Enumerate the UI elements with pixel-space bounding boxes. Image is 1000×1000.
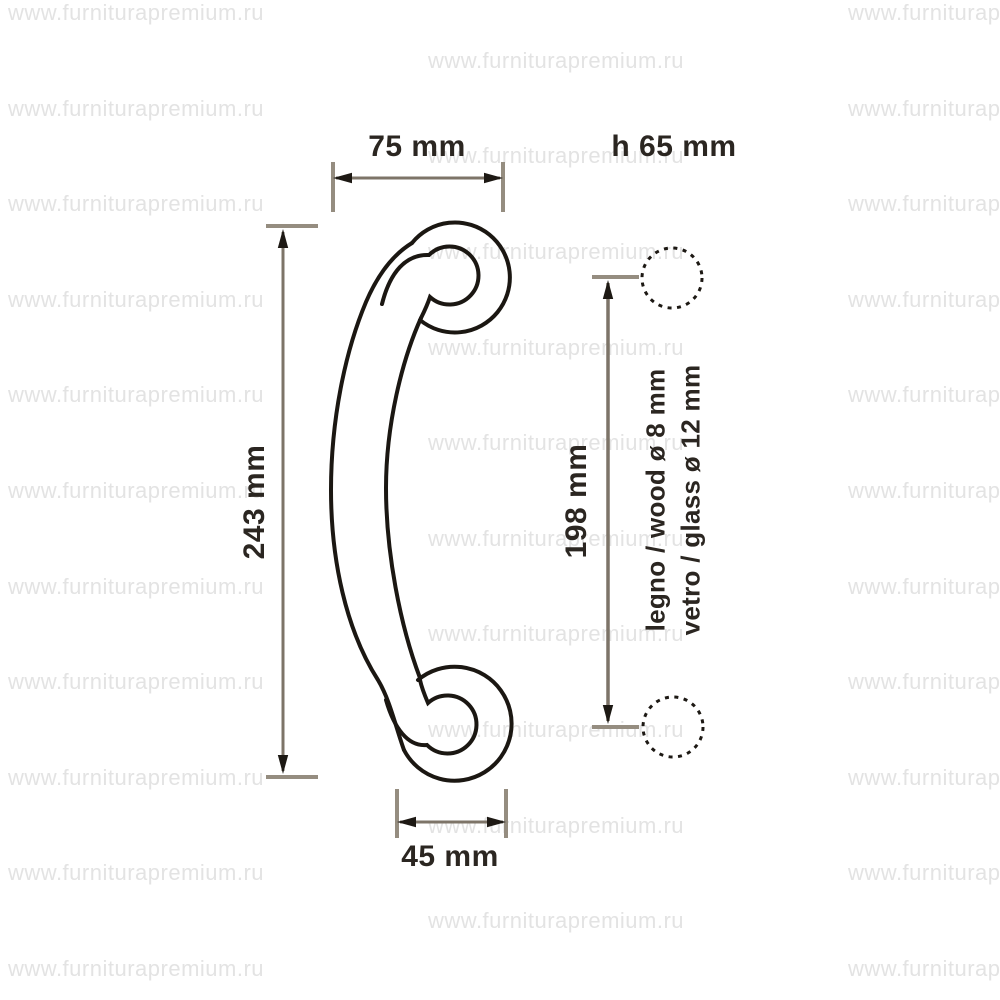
fixing-hole-circle-top [642, 248, 702, 308]
label-width-45mm: 45 mm [401, 840, 499, 874]
dimension-45mm [397, 789, 506, 838]
arrowhead-right [487, 817, 506, 827]
arrowhead-bottom [603, 705, 613, 724]
label-overall-height-243mm: 243 mm [238, 445, 272, 560]
fixing-hole-circle-bottom [643, 697, 703, 757]
grip-outer-edge [331, 243, 412, 750]
grip-inner-edge [386, 318, 421, 678]
arrowhead-top [278, 229, 288, 248]
label-wood-fixing: legno / wood ø 8 mm [641, 369, 672, 632]
arrowhead-right [484, 173, 503, 183]
label-width-75mm: 75 mm [368, 130, 466, 164]
dimension-75mm [333, 162, 503, 212]
label-handle-height-65mm: h 65 mm [611, 130, 736, 164]
arrowhead-bottom [278, 755, 288, 774]
dimension-198mm [592, 277, 639, 727]
arrowhead-left [397, 817, 416, 827]
arrowhead-top [603, 280, 613, 299]
dimension-243mm [266, 226, 318, 777]
handle-drawing [0, 0, 1000, 1000]
label-hole-distance-198mm: 198 mm [560, 444, 594, 559]
handle-outline [331, 222, 512, 780]
top-post-circle [412, 222, 510, 332]
technical-drawing-canvas: www.furniturapremium.ruwww.furnituraprem… [0, 0, 1000, 1000]
label-glass-fixing: vetro / glass ø 12 mm [676, 365, 707, 636]
arrowhead-left [333, 173, 352, 183]
